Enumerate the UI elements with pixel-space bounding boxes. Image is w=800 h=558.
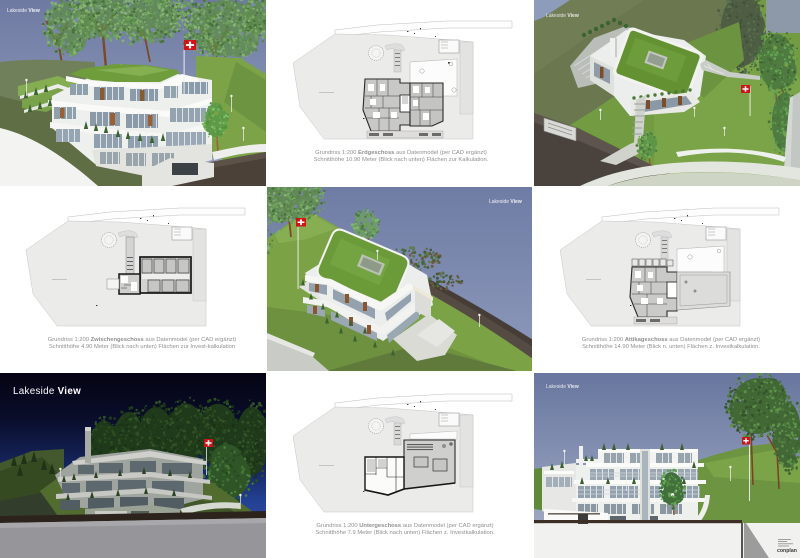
svg-text:Lakeside View: Lakeside View [7,8,40,14]
svg-text:Grundriss 1:200 Untergeschos: Grundriss 1:200 Untergeschoss aus Datenm… [316,523,493,529]
svg-text:Grundriss 1:200 Zwischengescho: Grundriss 1:200 Zwischengeschoss aus Dat… [48,337,237,343]
svg-text:Lakeside View: Lakeside View [489,199,522,205]
svg-text:Lakeside View: Lakeside View [546,13,579,19]
svg-text:Grundriss 1:200 Erdgeschoss a: Grundriss 1:200 Erdgeschoss aus Datenmod… [315,150,487,156]
svg-text:Grundriss 1:200 Attikageschoss: Grundriss 1:200 Attikageschoss aus Daten… [582,337,760,343]
svg-text:Schnitthöhe 10.90 Meter (Blick: Schnitthöhe 10.90 Meter (Blick nach unte… [314,157,489,163]
svg-text:Lakeside View: Lakeside View [13,386,81,397]
svg-text:Schnitthöhe 7.9 Meter (Blick n: Schnitthöhe 7.9 Meter (Blick nach unten)… [315,530,495,536]
svg-text:Schnitthöhe 4.90 Meter (Blick: Schnitthöhe 4.90 Meter (Blick nach unten… [49,344,235,350]
svg-text:Schnitthöhe 14.90 Meter (Blick: Schnitthöhe 14.90 Meter (Blick n. unten)… [582,344,760,350]
